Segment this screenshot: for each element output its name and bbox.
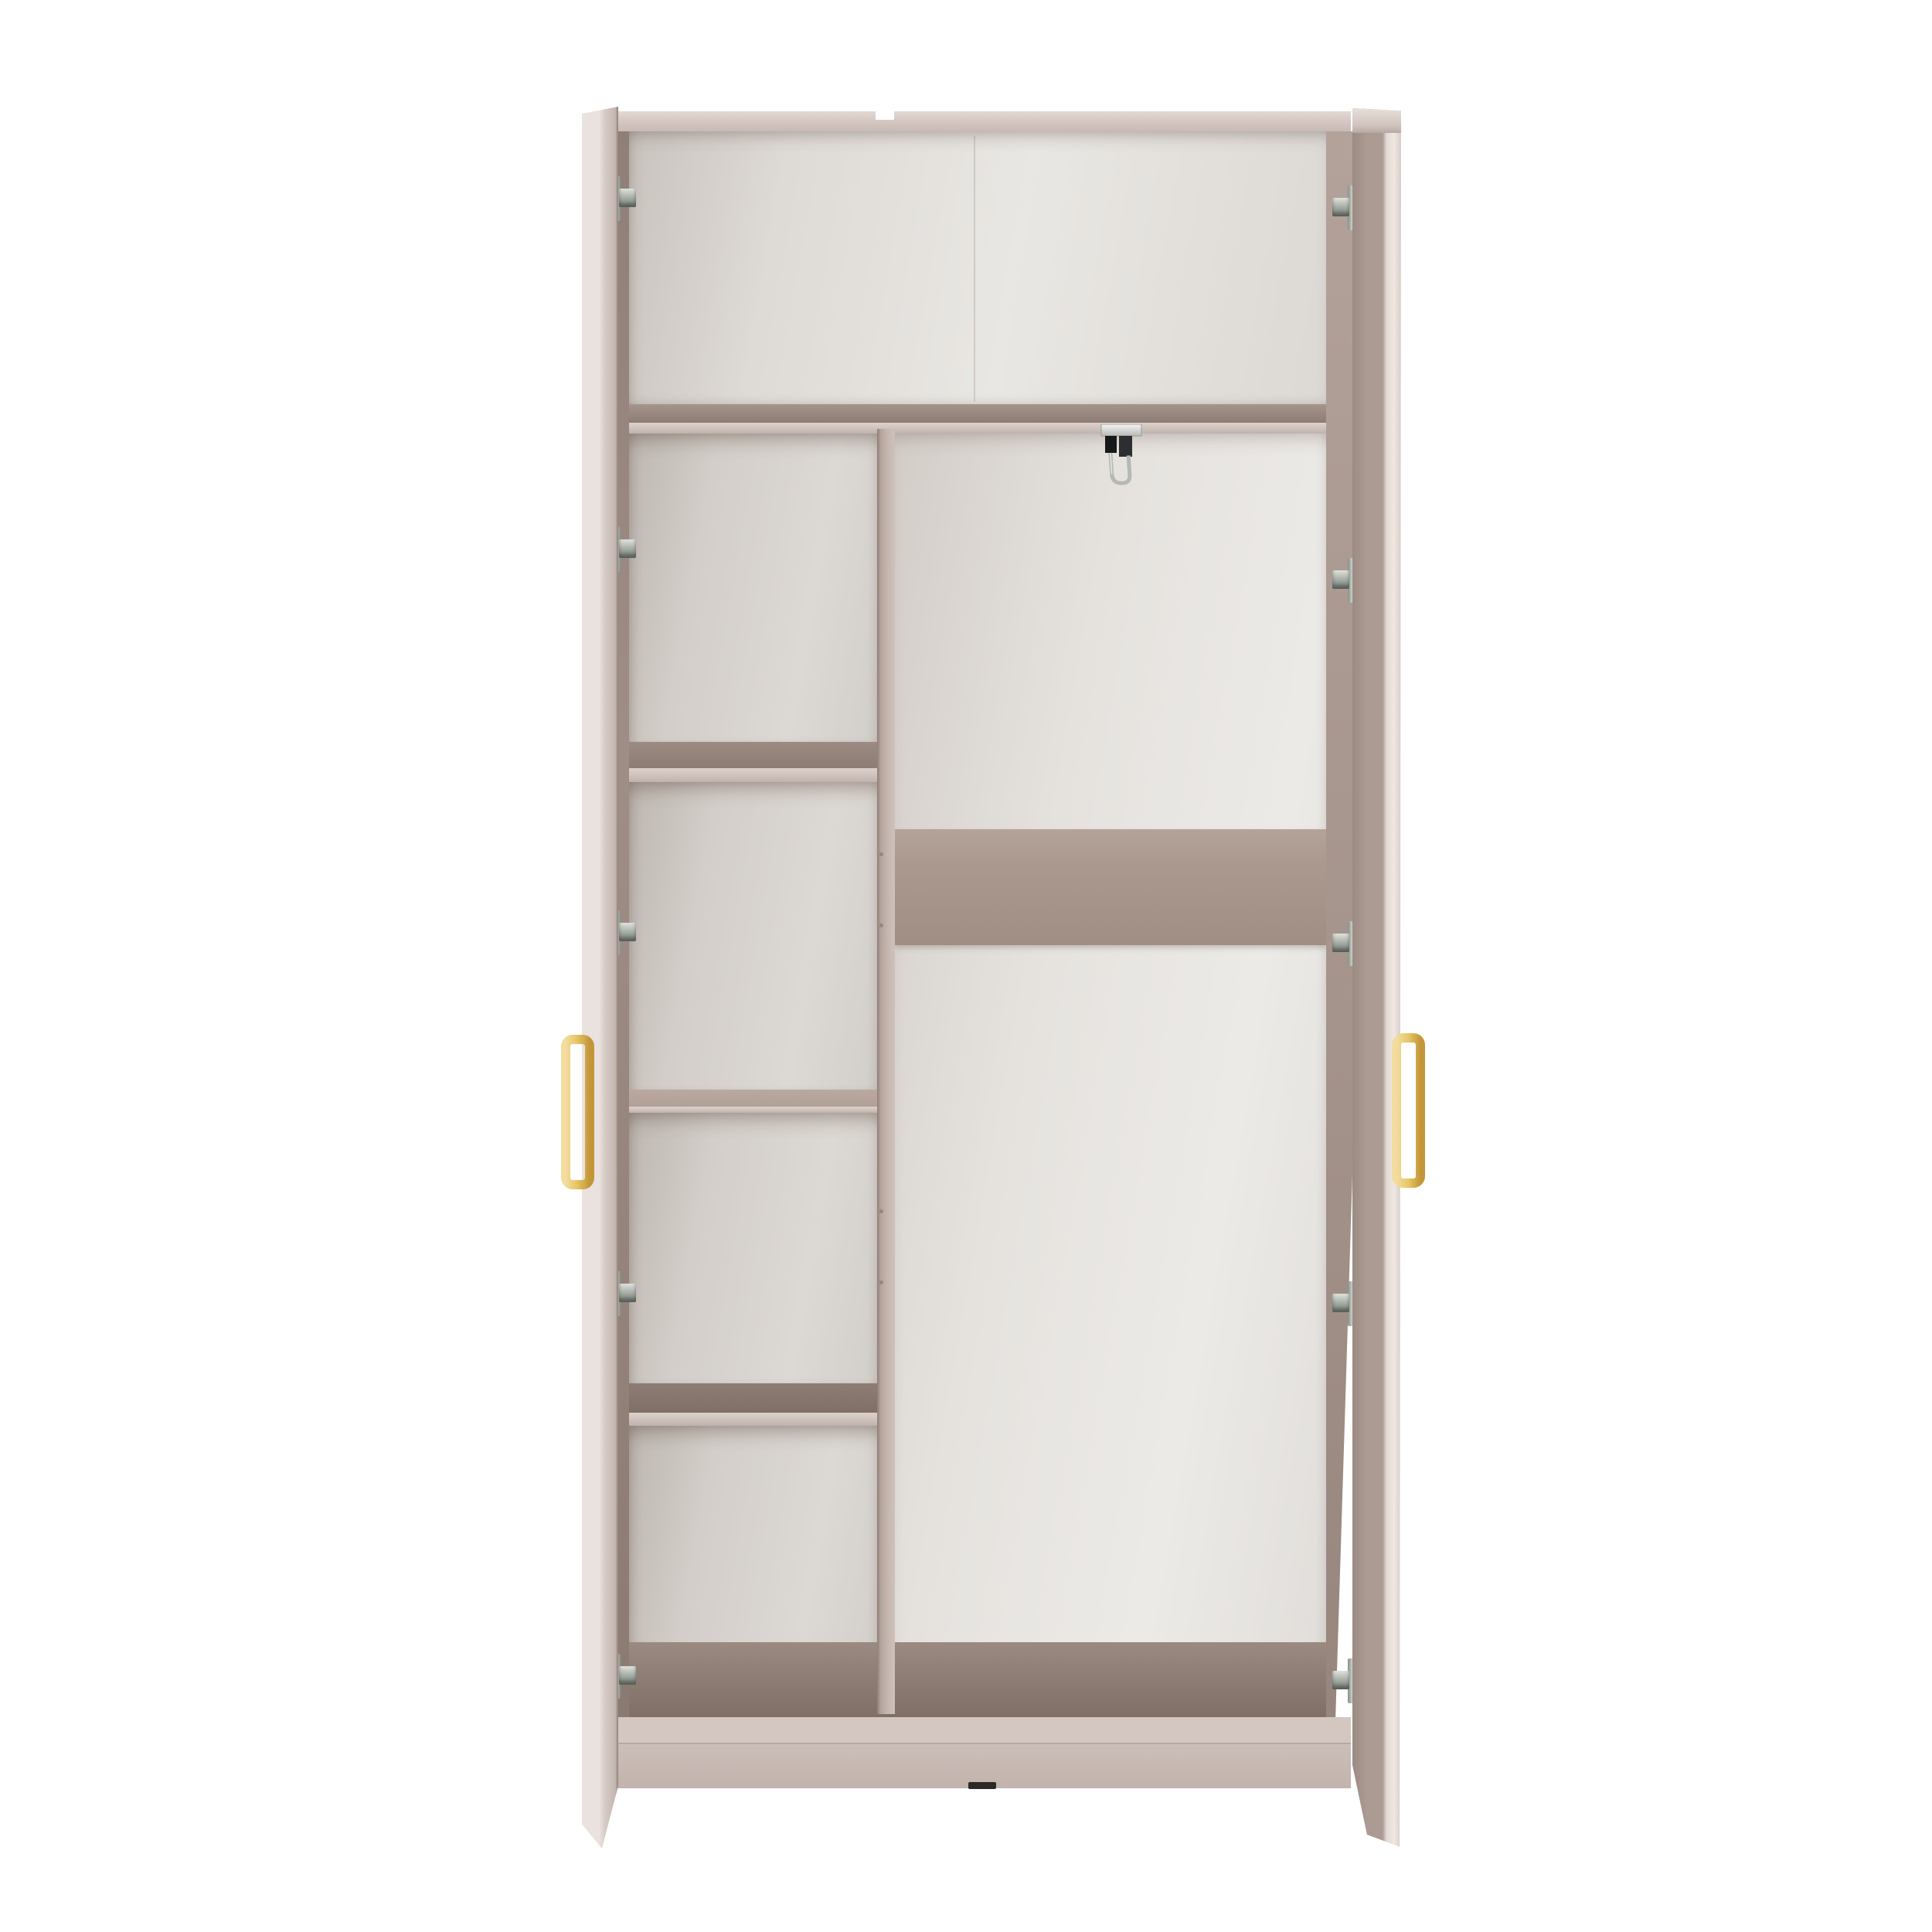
shelf-2-edge [628,1107,877,1113]
hanging-section [895,434,1326,1717]
shelf-1-surface [628,742,877,768]
plinth [599,1717,1351,1788]
shelf-2-surface [628,1090,877,1107]
right-door-handle [1391,1032,1425,1189]
cabinet-top-edge [617,111,1351,131]
shelf-pin-hole [879,923,883,927]
shelf-3-surface [628,1383,877,1413]
right-door [1352,108,1401,1849]
shelf-pin-hole [879,1209,883,1213]
shelf-1-edge [628,768,877,782]
cabinet-floor-shadow [628,1642,1326,1717]
shelf-3-edge [628,1413,877,1426]
hanger-hook [1100,424,1144,498]
plinth-seam [599,1743,1351,1744]
top-shelf-surface [628,404,1326,423]
top-shelf-edge [628,423,1326,434]
back-support-rail [895,829,1326,945]
center-partition [877,429,895,1714]
shelf-pin-hole [879,1281,883,1284]
top-edge-gap [550,108,566,118]
product-image: Tall two-door wardrobe shown with both d… [0,0,1932,1932]
shelf-pin-hole [879,852,883,856]
top-edge-gap [876,109,894,120]
left-door-handle [561,1034,595,1190]
cubby-2 [628,782,877,1090]
cubby-1 [628,434,877,742]
top-compartment [628,131,1326,404]
left-door [582,107,618,1849]
back-panel-seam [974,136,975,402]
cubby-3 [628,1113,877,1383]
plinth-notch [968,1782,996,1789]
right-door-top-edge [1352,108,1401,133]
